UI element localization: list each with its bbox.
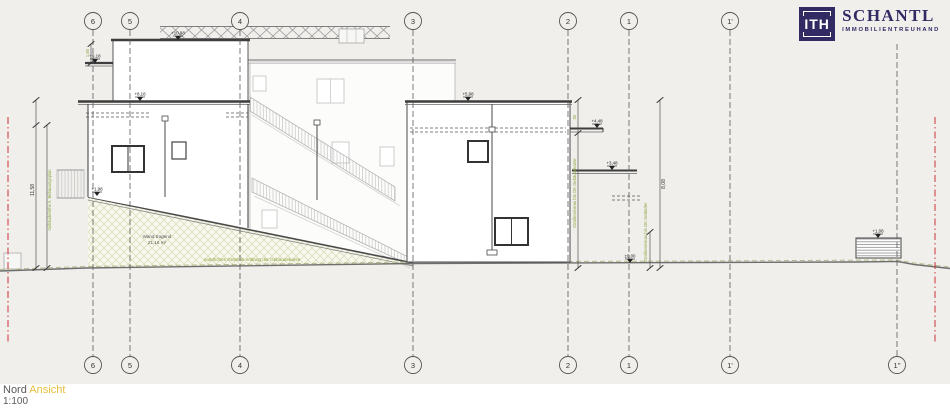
svg-text:+4,48: +4,48 bbox=[591, 119, 603, 124]
grid-label: 4 bbox=[238, 17, 242, 26]
grid-label: 6 bbox=[91, 17, 95, 26]
grid-label: 5 bbox=[128, 17, 132, 26]
grid-label: 3 bbox=[411, 361, 415, 370]
view-title-block: Nord Ansicht 1:100 bbox=[3, 385, 65, 407]
svg-text:+5,98: +5,98 bbox=[462, 92, 474, 97]
grid-label: 5 bbox=[128, 361, 132, 370]
grid-label: 1 bbox=[627, 361, 631, 370]
rooftop-box bbox=[339, 29, 364, 43]
elevation-marker: +5,98 bbox=[462, 92, 474, 102]
elevation-marker: +3,48 bbox=[606, 161, 618, 171]
svg-text:+3,48: +3,48 bbox=[606, 161, 618, 166]
grid-label: 3 bbox=[411, 17, 415, 26]
retaining-wall-right bbox=[856, 238, 901, 258]
drawing-sheet: Wand tragend 21,16 m² natürliches Geländ… bbox=[0, 0, 950, 384]
logo-text: SCHANTL IMMOBILIENTREUHAND bbox=[842, 7, 940, 33]
svg-text:+10,98: +10,98 bbox=[171, 31, 185, 36]
view-title-secondary: Ansicht bbox=[29, 384, 65, 396]
right-building bbox=[405, 101, 641, 262]
grid-label: 6 bbox=[91, 361, 95, 370]
svg-text:±0,00: ±0,00 bbox=[625, 254, 637, 259]
terrain-note: natürliches Gelände entlang der Gebäudek… bbox=[204, 257, 301, 262]
rear-stair-railing-left bbox=[57, 170, 84, 198]
window bbox=[468, 141, 488, 162]
rear-window bbox=[380, 147, 394, 166]
grid-label: 2 bbox=[566, 361, 570, 370]
elevation-marker: +1,08 bbox=[872, 229, 884, 239]
rear-window bbox=[262, 210, 277, 228]
dim-right-note: Straßenniveau bis OK Gebäudekante bbox=[572, 158, 577, 228]
svg-text:+1,98: +1,98 bbox=[91, 187, 103, 192]
window bbox=[172, 142, 186, 159]
grid-label: 1'' bbox=[893, 361, 901, 370]
svg-text:+9,18: +9,18 bbox=[89, 54, 101, 59]
dim-right-note2: Straßenniveau bis OK Geländer bbox=[643, 202, 648, 262]
dim-right-total: 8,08 bbox=[661, 179, 667, 189]
wall-label: Wand tragend bbox=[143, 234, 172, 239]
wall-area-label: 21,16 m² bbox=[148, 240, 167, 245]
logo-monogram: ITH bbox=[803, 16, 831, 32]
grid-label: 1 bbox=[627, 17, 631, 26]
grid-label: 1' bbox=[727, 361, 733, 370]
dim-left-note: Gebäudehöhe lt. Bebauungsplan bbox=[47, 169, 52, 231]
elevation-drawing-page: Wand tragend 21,16 m² natürliches Geländ… bbox=[0, 0, 950, 408]
dim-left-total: 11,58 bbox=[30, 184, 36, 196]
view-title: Nord Ansicht bbox=[3, 385, 65, 397]
svg-text:+8,18: +8,18 bbox=[134, 92, 146, 97]
scale-label: 1:100 bbox=[3, 397, 65, 408]
elevation-marker: +4,48 bbox=[591, 119, 603, 129]
logo-subtitle: IMMOBILIENTREUHAND bbox=[842, 27, 940, 33]
grid-label: 4 bbox=[238, 361, 242, 370]
grid-label: 1' bbox=[727, 17, 733, 26]
logo-name: SCHANTL bbox=[842, 7, 940, 24]
rear-window bbox=[253, 76, 266, 91]
logo: ITH SCHANTL IMMOBILIENTREUHAND bbox=[799, 7, 940, 41]
grid-bubbles-bottom: 6 5 4 3 2 1 1' 1'' bbox=[85, 357, 906, 374]
dim-right-top: 50 bbox=[572, 114, 577, 119]
logo-monogram-icon: ITH bbox=[799, 7, 835, 41]
svg-text:+1,08: +1,08 bbox=[872, 229, 884, 234]
view-title-primary: Nord bbox=[3, 384, 27, 396]
grid-label: 2 bbox=[566, 17, 570, 26]
elevation-svg: Wand tragend 21,16 m² natürliches Geländ… bbox=[0, 0, 950, 384]
